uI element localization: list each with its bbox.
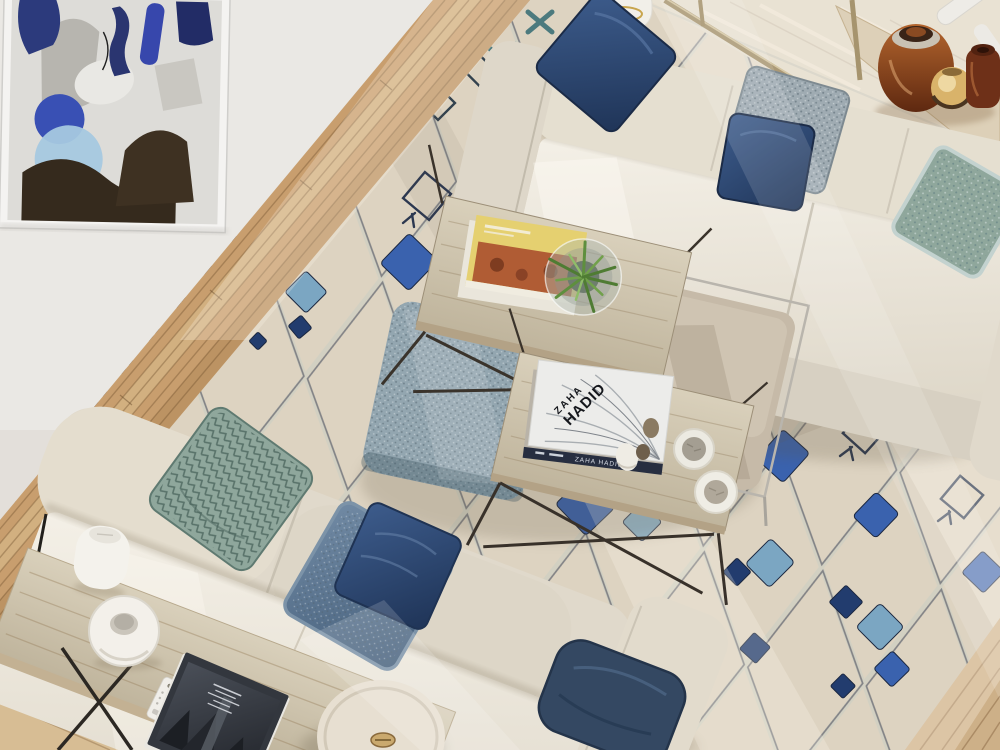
pebble: [643, 418, 659, 438]
amber-bottle: [966, 44, 1000, 108]
scene-canvas: ZAHA HADID ZAHA HADID: [0, 0, 1000, 750]
frosted-candle-bowl: [695, 471, 737, 513]
living-room-photo: ZAHA HADID ZAHA HADID: [0, 0, 1000, 750]
pebble: [636, 444, 650, 460]
abstract-wall-art: [0, 0, 232, 234]
zaha-hadid-book: ZAHA HADID ZAHA HADID: [523, 359, 674, 474]
frosted-candle-bowl: [674, 429, 714, 469]
